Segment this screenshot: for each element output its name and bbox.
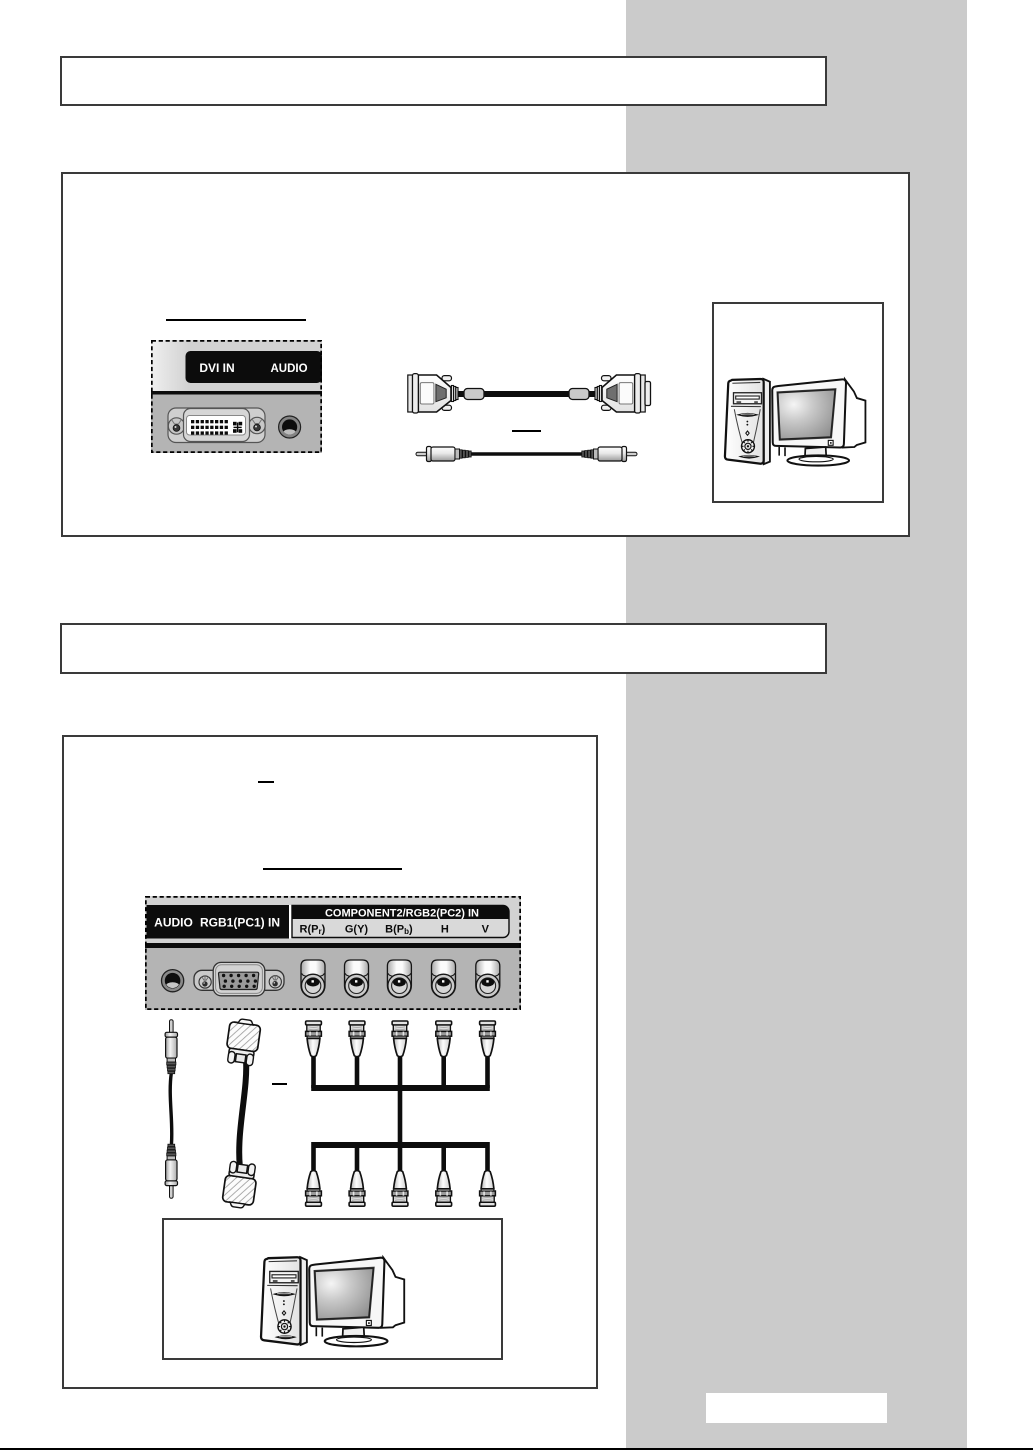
svg-text:RGB1(PC1) IN: RGB1(PC1) IN: [200, 916, 280, 930]
svg-text:V: V: [482, 924, 490, 936]
svg-text:H: H: [441, 924, 449, 936]
svg-text:AUDIO: AUDIO: [154, 916, 193, 930]
svg-text:B(Pb): B(Pb): [385, 924, 413, 937]
svg-text:COMPONENT2/RGB2(PC2) IN: COMPONENT2/RGB2(PC2) IN: [325, 908, 479, 920]
svg-text:R(Pr): R(Pr): [300, 924, 326, 937]
svg-text:AUDIO: AUDIO: [270, 363, 307, 375]
svg-text:G(Y): G(Y): [345, 924, 369, 936]
svg-text:DVI IN: DVI IN: [199, 361, 234, 375]
